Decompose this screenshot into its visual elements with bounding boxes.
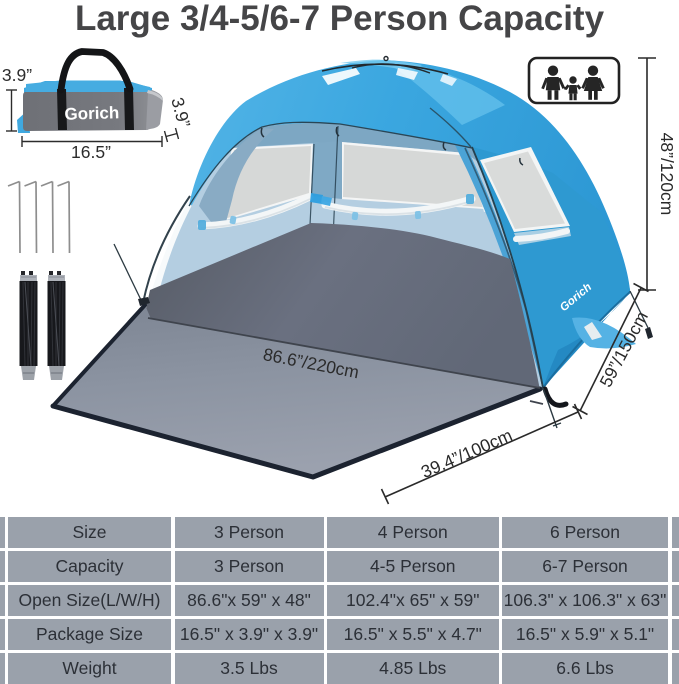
svg-text:Gorich: Gorich xyxy=(64,103,119,123)
svg-text:39.4”/100cm: 39.4”/100cm xyxy=(418,425,515,482)
svg-text:3.9”: 3.9” xyxy=(167,95,194,129)
svg-text:3.9”: 3.9” xyxy=(2,65,32,85)
svg-text:16.5”: 16.5” xyxy=(71,142,111,162)
svg-text:48”/120cm: 48”/120cm xyxy=(657,133,677,216)
